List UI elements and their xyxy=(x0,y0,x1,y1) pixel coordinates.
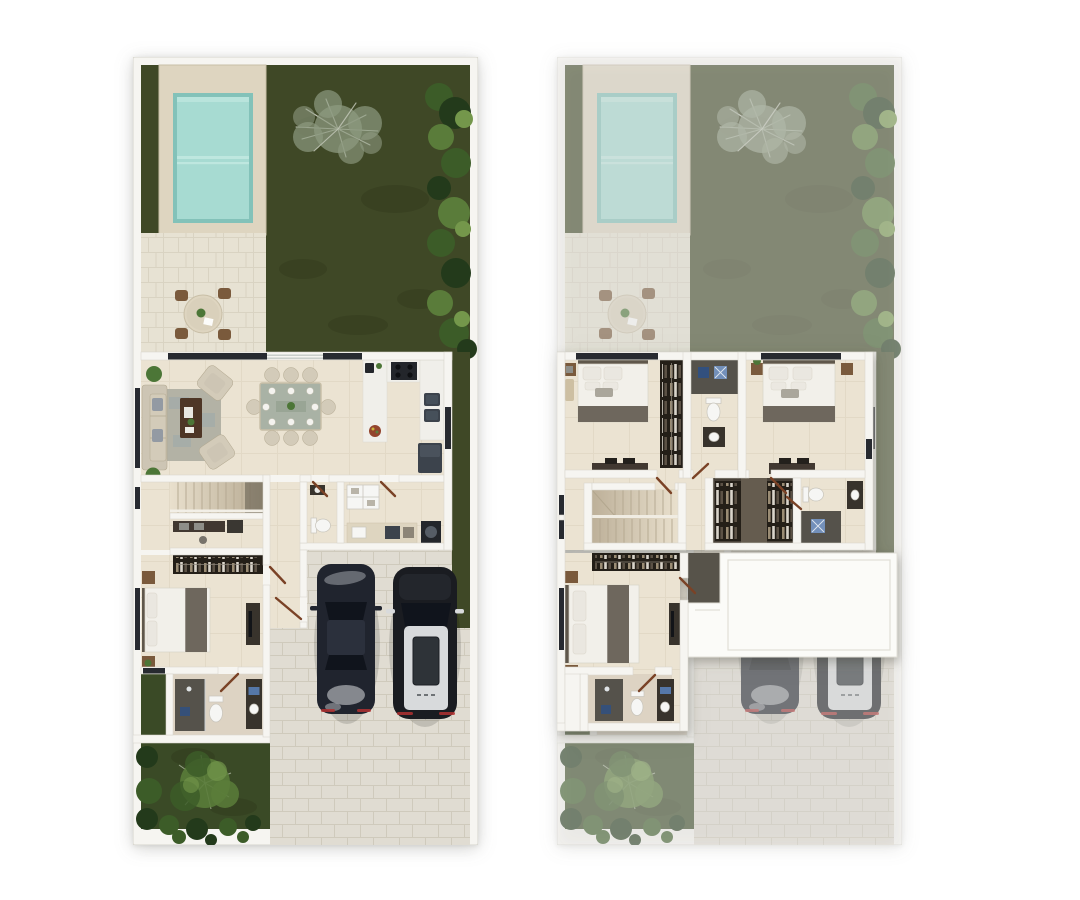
ground-floor-render xyxy=(133,57,478,845)
floor-plan-brochure-page: { "meta": { "description": "Top-down 3D … xyxy=(0,0,1080,900)
ground-floor-plan xyxy=(133,57,478,845)
upper-floor-plan xyxy=(557,57,902,845)
